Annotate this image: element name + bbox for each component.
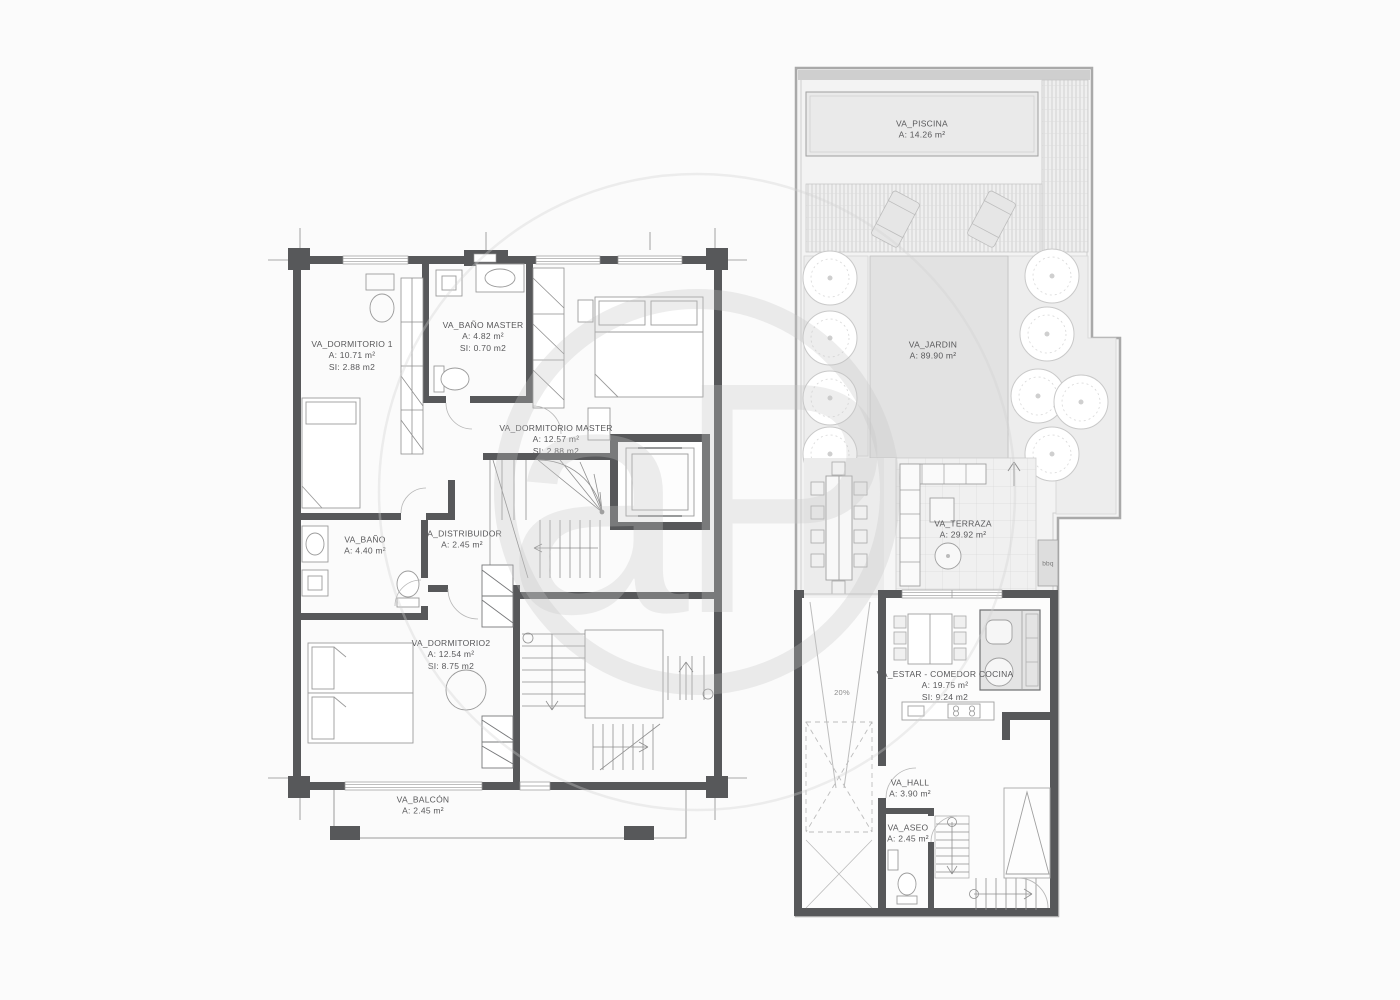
shower-icon bbox=[436, 270, 462, 296]
kitchen-island-icon bbox=[980, 610, 1040, 690]
sliding-door-icon bbox=[902, 590, 1002, 598]
stairs-icon bbox=[490, 460, 604, 578]
wardrobe-icon bbox=[401, 278, 423, 454]
upper-floor-plan bbox=[263, 223, 753, 883]
lower-stairs-icon bbox=[522, 630, 713, 770]
floorplan-sheet: VA_DORMITORIO 1 A: 10.71 m² SI: 2.88 m2 … bbox=[0, 0, 1400, 1000]
toilet-icon bbox=[434, 366, 469, 392]
garden-lawn bbox=[870, 256, 1008, 458]
bed-icon bbox=[302, 398, 360, 508]
desk-chair-icon bbox=[366, 274, 394, 322]
vent-block bbox=[474, 254, 496, 262]
terrace-path bbox=[884, 458, 896, 596]
balcony bbox=[330, 790, 686, 840]
toilet-icon bbox=[397, 571, 419, 607]
twin-beds-icon bbox=[308, 643, 413, 743]
dining-table-icon bbox=[894, 614, 966, 664]
bbq-icon bbox=[1038, 540, 1058, 586]
closet-icon bbox=[533, 268, 564, 408]
washbasin-icon bbox=[476, 264, 524, 292]
pool bbox=[806, 92, 1038, 156]
ground-floor-plan bbox=[780, 52, 1140, 932]
deck-strip-right bbox=[1042, 80, 1088, 252]
sink-icon bbox=[302, 526, 328, 596]
coffee-table-icon bbox=[930, 498, 954, 522]
fire-table-icon bbox=[935, 543, 961, 569]
mirror-wardrobe-icon bbox=[482, 565, 513, 768]
rug-icon bbox=[446, 670, 486, 710]
counter-stove-icon bbox=[902, 702, 994, 720]
elevator-icon bbox=[618, 442, 702, 522]
double-bed-icon bbox=[578, 297, 703, 440]
top-wall-band bbox=[798, 70, 1090, 80]
